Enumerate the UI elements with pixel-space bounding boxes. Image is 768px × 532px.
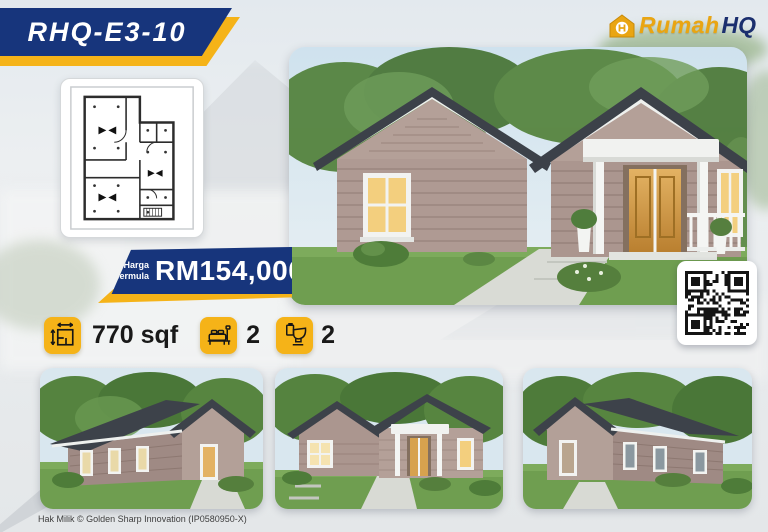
model-code-label: RHQ-E3-10 — [27, 17, 204, 48]
gallery-thumbnail-1 — [40, 368, 263, 509]
area-value: 770 sqf — [92, 321, 178, 350]
price-label: Harga bermula — [98, 260, 149, 282]
qr-code — [677, 261, 757, 345]
brand-logo: Rumah HQ — [609, 12, 756, 39]
floorplan-measure-icon — [44, 317, 81, 354]
model-code-badge: RHQ-E3-10 — [0, 8, 244, 66]
brand-word-hq: HQ — [722, 12, 757, 39]
bathrooms-value: 2 — [321, 321, 335, 350]
house-3d-render-front-small — [275, 368, 503, 509]
bed-icon — [200, 317, 237, 354]
gallery-thumbnail-2 — [275, 368, 503, 509]
copyright-text: Hak Milik © Golden Sharp Innovation (IP0… — [38, 514, 247, 524]
price-value: RM154,000 — [155, 255, 304, 287]
price-navy-plate: Harga bermula RM154,000 — [98, 247, 292, 294]
price-badge: Harga bermula RM154,000 — [98, 247, 294, 305]
floor-plan-thumbnail — [60, 78, 204, 238]
gallery-thumbnail-3 — [523, 368, 752, 509]
floor-plan-drawing — [61, 79, 203, 237]
house-3d-render-side-right — [523, 368, 752, 509]
toilet-icon — [276, 317, 313, 354]
bedrooms-value: 2 — [246, 321, 260, 350]
specs-row: 770 sqf 2 2 — [44, 315, 335, 355]
house-monogram-icon — [609, 14, 635, 38]
brand-word-rumah: Rumah — [639, 12, 719, 39]
flyer-page: RHQ-E3-10 Rumah HQ — [0, 0, 768, 532]
badge-navy-plate: RHQ-E3-10 — [0, 8, 232, 56]
qr-code-grid — [685, 269, 749, 337]
house-3d-render-side-left — [40, 368, 263, 509]
